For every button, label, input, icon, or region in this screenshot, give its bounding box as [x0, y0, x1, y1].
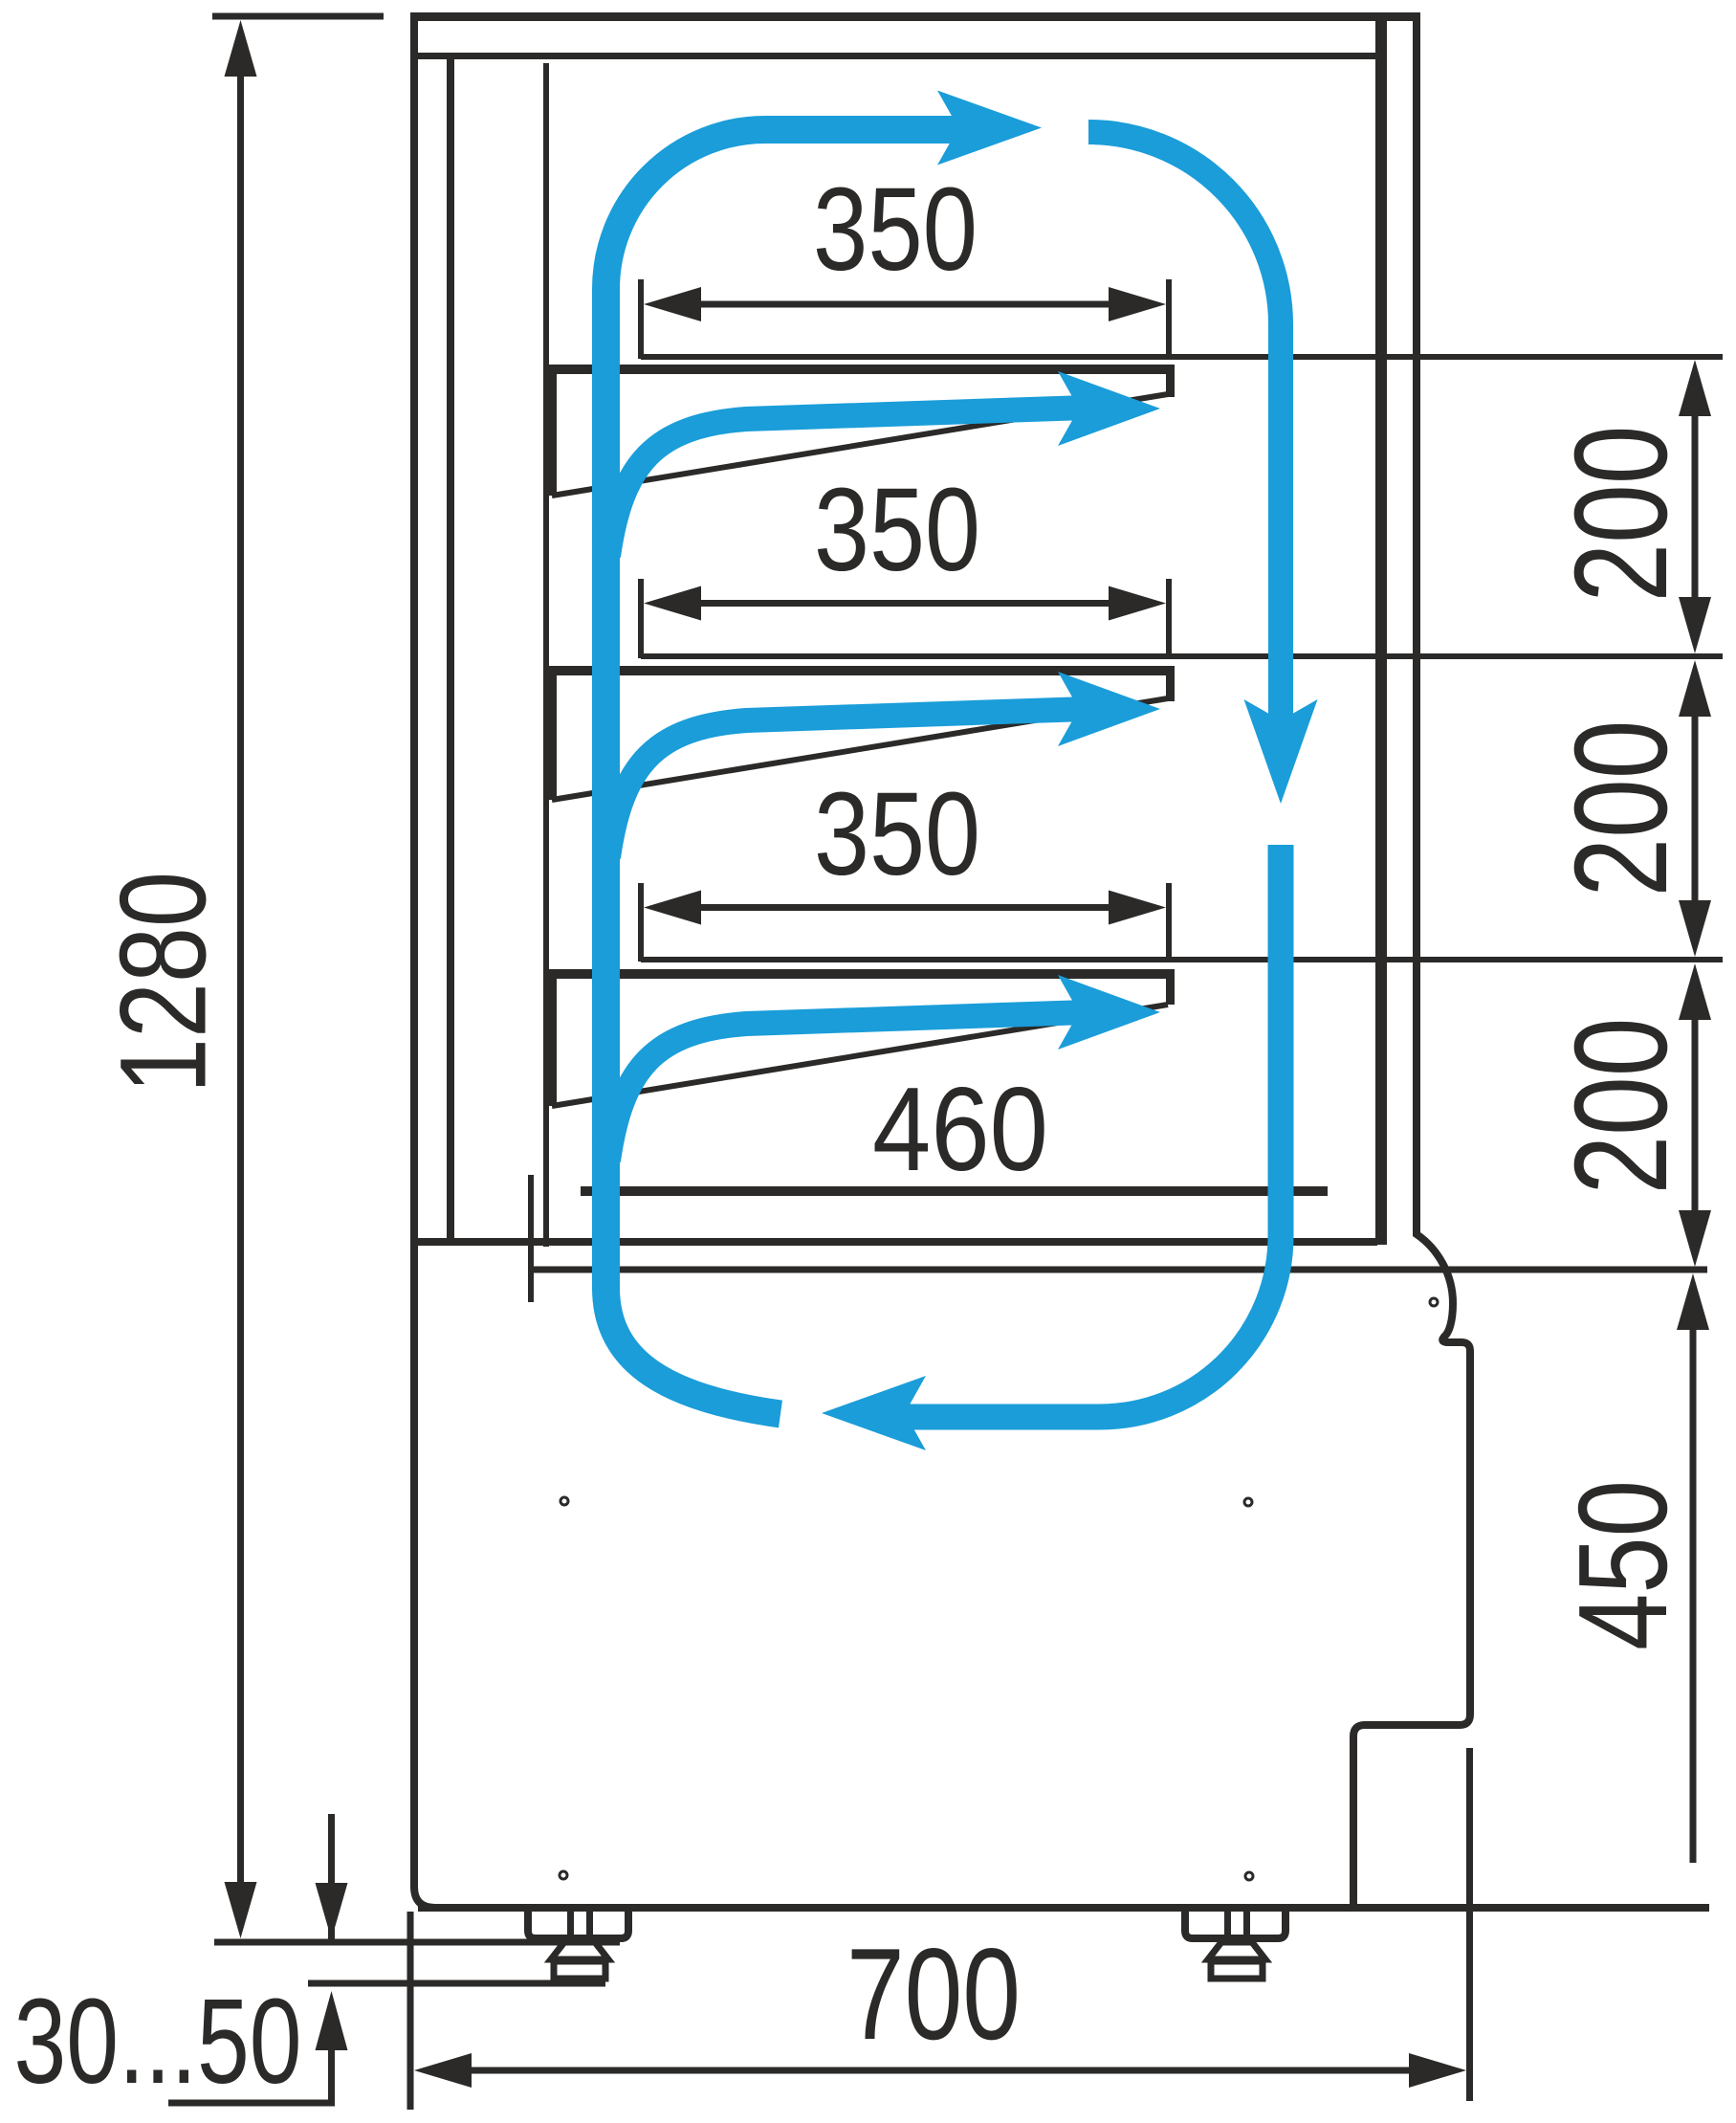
svg-text:350: 350	[813, 165, 978, 296]
svg-text:200: 200	[1548, 1018, 1695, 1195]
svg-text:200: 200	[1548, 720, 1695, 897]
svg-text:1280: 1280	[96, 872, 232, 1094]
svg-text:350: 350	[814, 769, 980, 900]
svg-text:350: 350	[814, 465, 980, 596]
svg-text:460: 460	[872, 1064, 1048, 1196]
svg-text:200: 200	[1548, 426, 1695, 603]
svg-text:450: 450	[1552, 1480, 1693, 1650]
svg-text:30...50: 30...50	[14, 1974, 302, 2109]
svg-text:700: 700	[846, 1921, 1021, 2067]
